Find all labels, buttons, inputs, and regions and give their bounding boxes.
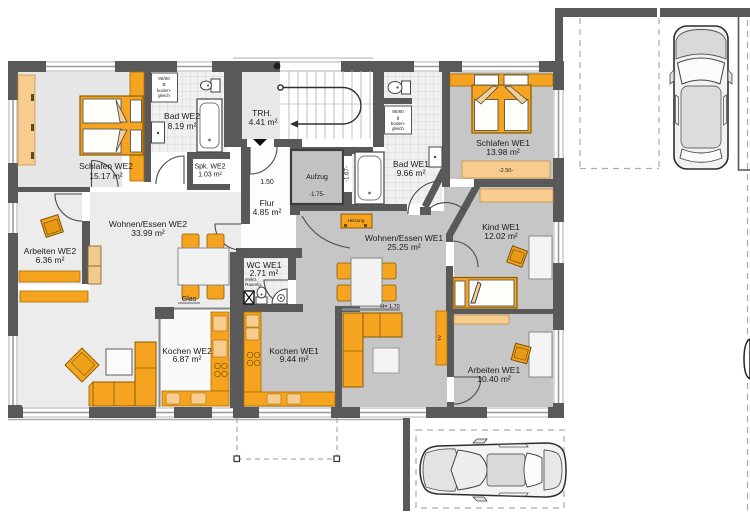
svg-text:90/80: 90/80 [392, 109, 404, 114]
svg-text:Spk. WE2: Spk. WE2 [194, 164, 225, 171]
svg-text:8.19 m²: 8.19 m² [168, 121, 197, 131]
svg-text:gleich: gleich [158, 93, 170, 98]
svg-text:4.41 m²: 4.41 m² [249, 117, 278, 127]
svg-text:10.40 m²: 10.40 m² [477, 374, 511, 384]
svg-text:Heizung: Heizung [348, 218, 365, 223]
svg-text:g: g [397, 115, 400, 120]
svg-text:6.87 m²: 6.87 m² [173, 354, 202, 364]
svg-text:9.66 m²: 9.66 m² [397, 168, 426, 178]
svg-text:12.02 m²: 12.02 m² [484, 231, 518, 241]
svg-text:13.98 m²: 13.98 m² [486, 147, 520, 157]
svg-text:33.99 m²: 33.99 m² [131, 228, 165, 238]
svg-text:9.44 m²: 9.44 m² [280, 354, 309, 364]
svg-text:Glas: Glas [182, 296, 197, 303]
svg-text:4.85 m²: 4.85 m² [253, 207, 282, 217]
svg-text:Raumlg.: Raumlg. [245, 282, 262, 287]
svg-text:TV: TV [437, 335, 442, 341]
svg-text:-1.75-: -1.75- [309, 192, 325, 198]
svg-text:H= 1.70: H= 1.70 [380, 304, 399, 310]
svg-text:B: B [162, 82, 165, 87]
svg-text:-2.50-: -2.50- [499, 168, 514, 174]
svg-text:Aufzug: Aufzug [306, 174, 328, 181]
svg-text:25.25 m²: 25.25 m² [387, 242, 421, 252]
svg-text:Bad WE2: Bad WE2 [164, 111, 200, 121]
svg-text:Schlafen WE2: Schlafen WE2 [79, 161, 133, 171]
svg-text:6.36 m²: 6.36 m² [36, 255, 65, 265]
svg-text:-1.67-: -1.67- [345, 166, 351, 182]
svg-text:gleich: gleich [392, 126, 404, 131]
svg-text:1.03 m²: 1.03 m² [198, 172, 222, 179]
svg-text:15.17 m²: 15.17 m² [89, 171, 123, 181]
svg-text:1.50: 1.50 [260, 179, 274, 186]
svg-text:90/80: 90/80 [158, 76, 170, 81]
svg-text:2.71 m²: 2.71 m² [250, 268, 279, 278]
